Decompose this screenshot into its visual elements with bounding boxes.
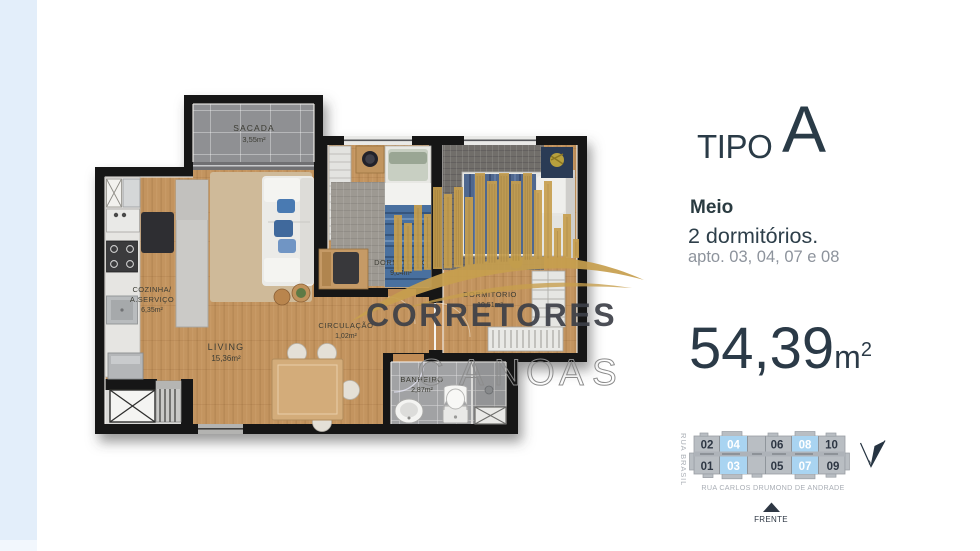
svg-text:A: A (782, 92, 826, 166)
svg-text:FRENTE: FRENTE (754, 515, 788, 524)
svg-text:02: 02 (701, 440, 714, 452)
svg-text:09: 09 (827, 461, 840, 473)
svg-text:O: O (526, 352, 555, 393)
svg-text:S: S (592, 352, 617, 393)
svg-text:1,02m²: 1,02m² (335, 333, 357, 340)
svg-text:2 dormitórios.: 2 dormitórios. (688, 224, 818, 248)
svg-text:15,36m²: 15,36m² (211, 354, 241, 363)
svg-text:04: 04 (727, 440, 740, 452)
svg-text:COZINHA/: COZINHA/ (132, 285, 172, 294)
svg-text:N: N (869, 461, 873, 467)
svg-text:A.SERVIÇO: A.SERVIÇO (130, 295, 174, 304)
svg-text:RUA BRASIL: RUA BRASIL (679, 433, 688, 486)
svg-text:A: A (459, 352, 484, 393)
svg-text:3,55m²: 3,55m² (242, 135, 266, 144)
svg-text:07: 07 (799, 461, 812, 473)
svg-text:05: 05 (771, 461, 784, 473)
svg-text:apto. 03, 04, 07 e 08: apto. 03, 04, 07 e 08 (688, 248, 839, 266)
svg-text:RUA CARLOS DRUMOND DE ANDRADE: RUA CARLOS DRUMOND DE ANDRADE (701, 483, 844, 492)
svg-text:C: C (417, 352, 444, 393)
svg-text:CORRETORES: CORRETORES (366, 297, 617, 333)
svg-text:01: 01 (701, 461, 714, 473)
svg-text:03: 03 (727, 461, 740, 473)
svg-text:SACADA: SACADA (233, 123, 275, 133)
svg-text:08: 08 (799, 440, 812, 452)
svg-text:N: N (494, 352, 521, 393)
svg-text:TIPO: TIPO (697, 128, 772, 165)
svg-text:10: 10 (825, 440, 838, 452)
svg-text:LIVING: LIVING (208, 342, 245, 352)
svg-text:06: 06 (771, 440, 784, 452)
svg-text:6,35m²: 6,35m² (141, 307, 163, 314)
svg-text:A: A (559, 352, 584, 393)
svg-text:Meio: Meio (690, 197, 733, 218)
